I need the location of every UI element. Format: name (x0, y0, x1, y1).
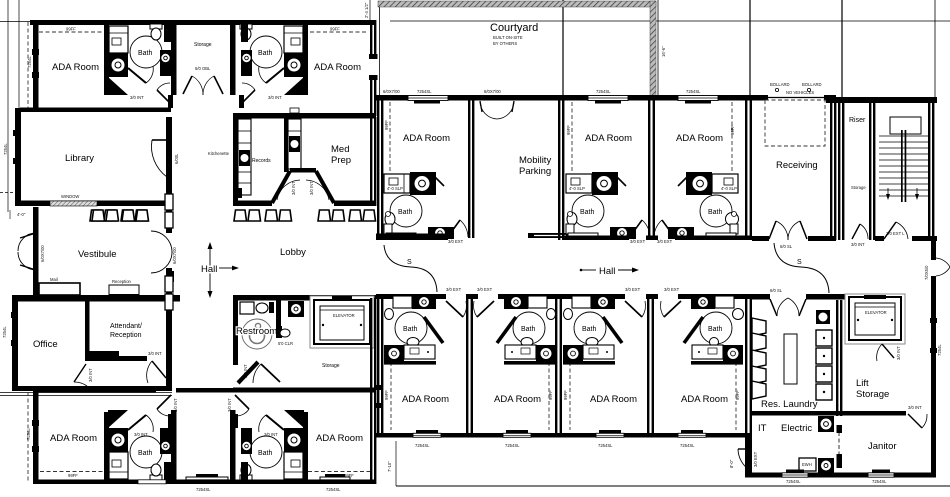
svg-text:Bath: Bath (138, 50, 153, 57)
svg-text:7254SL: 7254SL (598, 443, 613, 448)
svg-text:7254SL: 7254SL (415, 443, 430, 448)
svg-text:BOLLARD: BOLLARD (802, 82, 822, 87)
svg-text:Courtyard: Courtyard (490, 22, 538, 34)
svg-text:Prep: Prep (331, 155, 351, 166)
svg-text:5'0 CLR: 5'0 CLR (278, 341, 293, 346)
svg-text:Res. Laundry: Res. Laundry (761, 399, 818, 410)
svg-text:Office: Office (33, 339, 58, 350)
svg-text:3/0 INT: 3/0 INT (88, 368, 93, 382)
svg-text:Electric: Electric (781, 423, 812, 434)
svg-text:8'-0": 8'-0" (729, 459, 734, 468)
svg-text:7254SL: 7254SL (680, 443, 695, 448)
svg-text:ELEVATOR: ELEVATOR (865, 310, 887, 315)
svg-text:Bath: Bath (398, 209, 413, 216)
svg-text:Receiving: Receiving (776, 160, 818, 171)
svg-text:4'-0": 4'-0" (17, 212, 26, 217)
svg-text:3/0 EXT: 3/0 EXT (630, 239, 646, 244)
svg-text:7254SL: 7254SL (417, 89, 432, 94)
svg-text:S: S (797, 259, 802, 266)
svg-text:3/0 INT: 3/0 INT (227, 398, 232, 412)
svg-text:Med: Med (331, 144, 349, 155)
svg-text:ADA Room: ADA Room (52, 62, 99, 73)
svg-text:3/0 INT: 3/0 INT (148, 351, 162, 356)
svg-text:Janitor: Janitor (868, 441, 897, 452)
svg-text:5/0 OBL: 5/0 OBL (195, 66, 211, 71)
svg-text:ADA Room: ADA Room (585, 133, 632, 144)
svg-text:Bath: Bath (258, 450, 273, 457)
svg-text:99FF: 99FF (384, 390, 389, 400)
svg-text:3/0 EXT: 3/0 EXT (477, 287, 493, 292)
svg-text:7'-10": 7'-10" (387, 461, 392, 472)
svg-text:Library: Library (65, 153, 94, 164)
svg-text:Vestibule: Vestibule (78, 249, 117, 260)
svg-text:3/0 INT: 3/0 INT (309, 181, 314, 195)
svg-text:Reception: Reception (110, 332, 142, 339)
svg-text:Attendant/: Attendant/ (110, 323, 142, 330)
svg-text:BY OTHERS: BY OTHERS (493, 41, 517, 46)
svg-text:Storage: Storage (194, 42, 212, 48)
svg-text:3/0 EXT: 3/0 EXT (446, 287, 462, 292)
svg-text:6/0 SL: 6/0 SL (770, 288, 783, 293)
svg-text:Mail: Mail (50, 277, 58, 282)
svg-text:6/0X7/00: 6/0X7/00 (484, 89, 501, 94)
svg-text:7254L: 7254L (937, 344, 942, 356)
svg-text:Kitchenette: Kitchenette (208, 151, 230, 156)
svg-text:Restroom: Restroom (236, 326, 277, 337)
svg-text:F/D: F/D (255, 296, 262, 301)
svg-text:ADA Room: ADA Room (590, 394, 637, 405)
svg-text:ADA Room: ADA Room (681, 394, 728, 405)
svg-text:WINDOW: WINDOW (61, 194, 79, 199)
svg-text:ADA Room: ADA Room (676, 133, 723, 144)
svg-text:ADA Room: ADA Room (494, 394, 541, 405)
svg-text:99FF: 99FF (548, 390, 553, 400)
svg-text:Bath: Bath (580, 209, 595, 216)
svg-text:3/0 INT: 3/0 INT (130, 95, 144, 100)
svg-text:7254SL: 7254SL (786, 479, 801, 484)
svg-text:ADA Room: ADA Room (316, 433, 363, 444)
svg-text:BOLLARD: BOLLARD (770, 82, 790, 87)
svg-text:3/0 EXT L: 3/0 EXT L (886, 231, 905, 236)
svg-text:Storage: Storage (851, 185, 866, 190)
svg-text:S: S (407, 259, 412, 266)
svg-text:Parking: Parking (519, 166, 551, 177)
svg-text:99FF: 99FF (735, 390, 740, 400)
svg-text:3/0 INT: 3/0 INT (851, 242, 865, 247)
svg-text:7254L: 7254L (26, 428, 31, 440)
svg-text:Riser: Riser (849, 117, 866, 124)
svg-text:Bath: Bath (582, 326, 597, 333)
svg-text:Hall: Hall (599, 266, 615, 277)
svg-text:99FF: 99FF (68, 473, 78, 478)
svg-text:Bath: Bath (258, 50, 273, 57)
svg-text:4'-0 SLP: 4'-0 SLP (569, 186, 585, 191)
svg-text:6/0 SL: 6/0 SL (780, 244, 793, 249)
svg-text:3/0 EXT: 3/0 EXT (657, 239, 673, 244)
svg-text:Bath: Bath (708, 209, 723, 216)
svg-text:4'-0 SLP: 4'-0 SLP (721, 186, 737, 191)
svg-text:7/0X5/0: 7/0X5/0 (924, 265, 929, 280)
svg-text:2'-4 1/2": 2'-4 1/2" (364, 2, 369, 18)
svg-text:6/0X7/00: 6/0X7/00 (172, 247, 177, 264)
svg-text:4'-0 SLP: 4'-0 SLP (387, 186, 403, 191)
svg-text:ADA Room: ADA Room (314, 62, 361, 73)
svg-text:99FF: 99FF (66, 27, 76, 32)
svg-text:Bath: Bath (708, 326, 723, 333)
svg-text:ELEVATOR: ELEVATOR (333, 313, 355, 318)
svg-text:Lobby: Lobby (280, 247, 306, 258)
svg-text:ADA Room: ADA Room (50, 433, 97, 444)
svg-text:3/0 INT: 3/0 INT (268, 95, 282, 100)
svg-text:3/0 INT: 3/0 INT (173, 398, 178, 412)
svg-text:7254SL: 7254SL (686, 89, 701, 94)
svg-text:BUILT ON-SITE: BUILT ON-SITE (493, 35, 523, 40)
svg-text:3/0 INT: 3/0 INT (896, 346, 901, 360)
svg-text:Storage: Storage (322, 363, 340, 369)
svg-text:7254SL: 7254SL (872, 479, 887, 484)
svg-text:Hall: Hall (201, 264, 217, 275)
svg-text:6/0X7/00: 6/0X7/00 (40, 245, 45, 262)
svg-text:7254L: 7254L (2, 326, 7, 338)
svg-text:7254SL: 7254SL (505, 443, 520, 448)
svg-text:7254SL: 7254SL (326, 487, 341, 492)
svg-text:Bath: Bath (138, 450, 153, 457)
svg-text:99FF: 99FF (730, 125, 735, 135)
svg-text:Lift: Lift (856, 378, 869, 389)
svg-text:99FF: 99FF (330, 27, 340, 32)
svg-text:3/0 INT: 3/0 INT (291, 181, 296, 195)
svg-text:Reception: Reception (112, 279, 132, 284)
svg-text:3/0 EXT: 3/0 EXT (448, 239, 464, 244)
svg-text:7254SL: 7254SL (596, 89, 611, 94)
svg-text:99FF: 99FF (563, 390, 568, 400)
svg-text:3/0 EXT: 3/0 EXT (625, 287, 641, 292)
svg-text:16'-6": 16'-6" (661, 46, 666, 57)
svg-text:3/0 INT: 3/0 INT (134, 432, 148, 437)
svg-text:99FF: 99FF (384, 120, 389, 130)
svg-text:3/0 EXT: 3/0 EXT (753, 451, 758, 467)
svg-text:6/0X7/00: 6/0X7/00 (383, 89, 400, 94)
svg-text:ADA Room: ADA Room (402, 394, 449, 405)
svg-text:IT: IT (758, 423, 767, 434)
svg-text:3/0 INT: 3/0 INT (264, 432, 278, 437)
svg-text:7254SL: 7254SL (196, 487, 211, 492)
svg-text:Mobility: Mobility (519, 155, 551, 166)
svg-text:6/00L: 6/00L (174, 153, 179, 164)
svg-text:99FF: 99FF (566, 125, 571, 135)
svg-text:EWH: EWH (802, 462, 812, 467)
svg-text:Bath: Bath (521, 326, 536, 333)
svg-text:Records: Records (252, 158, 271, 164)
svg-text:3/0 EXT: 3/0 EXT (664, 287, 680, 292)
svg-text:ADA Room: ADA Room (403, 133, 450, 144)
svg-text:Bath: Bath (403, 326, 418, 333)
svg-text:7254L: 7254L (27, 56, 32, 68)
svg-text:7254L: 7254L (3, 143, 8, 155)
svg-text:3/0 INT: 3/0 INT (908, 405, 922, 410)
svg-text:Storage: Storage (856, 389, 889, 400)
